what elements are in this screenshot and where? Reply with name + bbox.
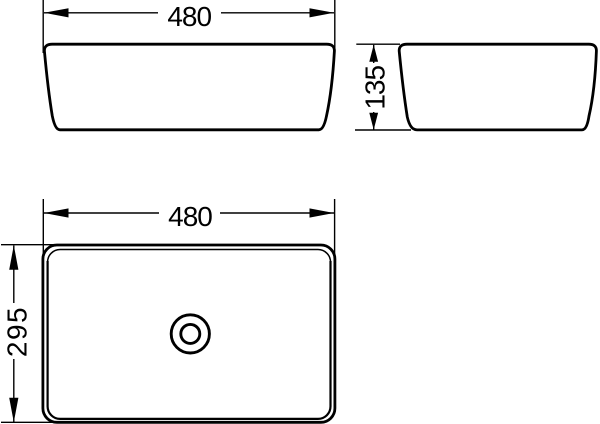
svg-text:480: 480 (167, 1, 211, 32)
svg-text:480: 480 (168, 201, 212, 232)
svg-text:135: 135 (360, 66, 391, 110)
svg-text:295: 295 (1, 306, 32, 357)
